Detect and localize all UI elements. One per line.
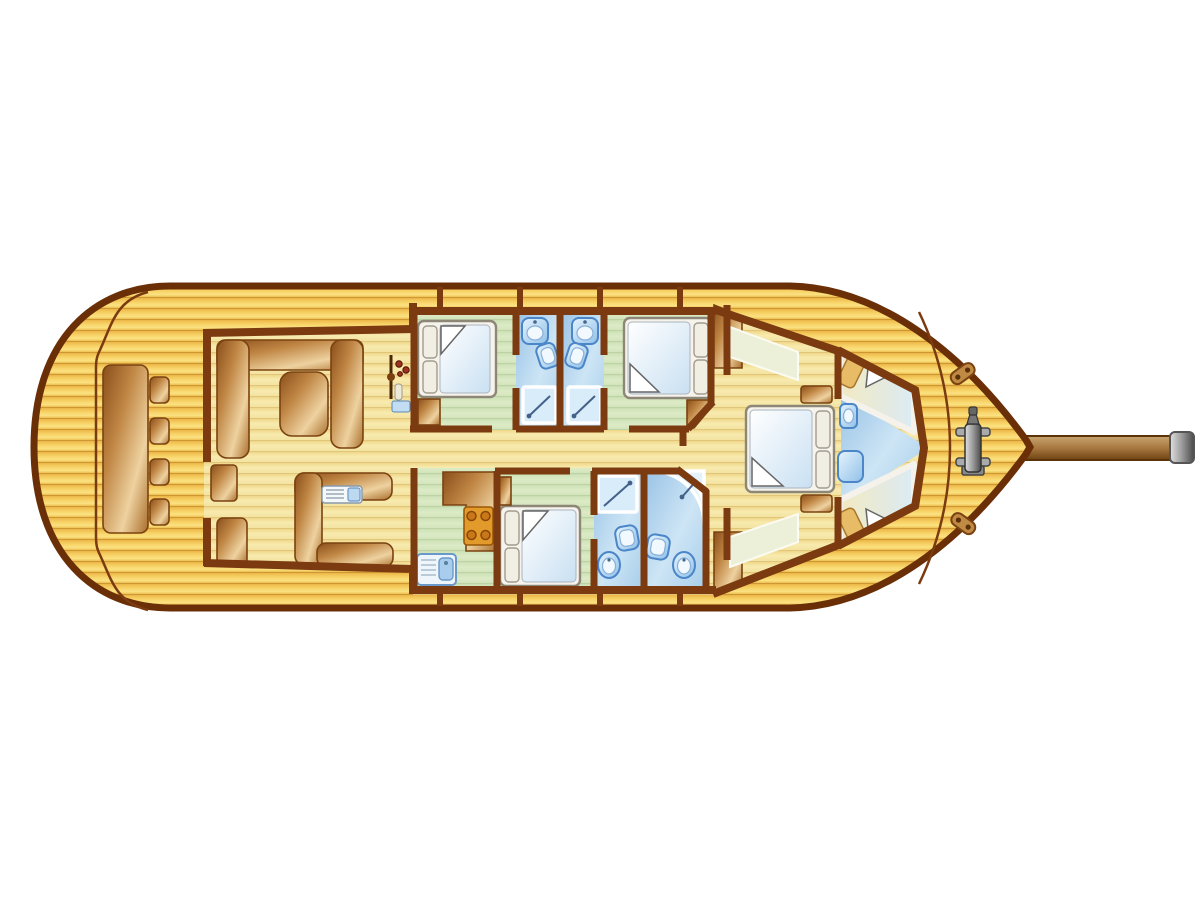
deck-plan-drawing	[0, 0, 1200, 900]
stool	[150, 377, 169, 403]
sofa-right-arm	[331, 340, 363, 448]
companionway-step	[211, 465, 237, 501]
pillow	[505, 548, 519, 582]
instrument-knob	[403, 367, 409, 373]
salon-table	[280, 372, 328, 436]
stove	[464, 507, 493, 545]
galley-sink	[417, 554, 456, 585]
stool	[150, 459, 169, 485]
toilet	[598, 552, 620, 578]
seat	[838, 451, 863, 482]
aft-deck-table	[103, 365, 148, 533]
nightstand	[801, 386, 832, 403]
throttle-lever	[395, 384, 402, 400]
pillow	[694, 323, 708, 357]
toilet	[673, 552, 695, 578]
bowsprit-tip	[1170, 432, 1194, 463]
pillow	[816, 411, 830, 448]
instrument-knob	[398, 372, 403, 377]
cabin-port-fwd-bed	[624, 318, 712, 398]
pillow	[423, 326, 437, 358]
pillow	[423, 361, 437, 393]
cabin-port-aft-bed	[418, 321, 496, 397]
sink	[614, 524, 640, 551]
cabin-nightstand	[499, 477, 511, 505]
counter-appliance	[322, 486, 362, 503]
bench-seat	[217, 518, 247, 565]
wheel-hub	[387, 373, 395, 381]
pillow	[505, 511, 519, 545]
sink	[645, 533, 671, 560]
stool	[150, 499, 169, 525]
stool	[150, 418, 169, 444]
pillow	[816, 451, 830, 488]
cabin-wardrobe	[418, 399, 440, 425]
sofa-left-arm	[217, 340, 249, 458]
instrument-panel	[392, 401, 410, 412]
cabin-starboard-bed	[500, 506, 580, 586]
pillow	[694, 360, 708, 394]
master-bed	[746, 406, 834, 492]
instrument-knob	[396, 361, 402, 367]
nightstand	[801, 495, 832, 512]
boat-floorplan-page	[0, 0, 1200, 900]
